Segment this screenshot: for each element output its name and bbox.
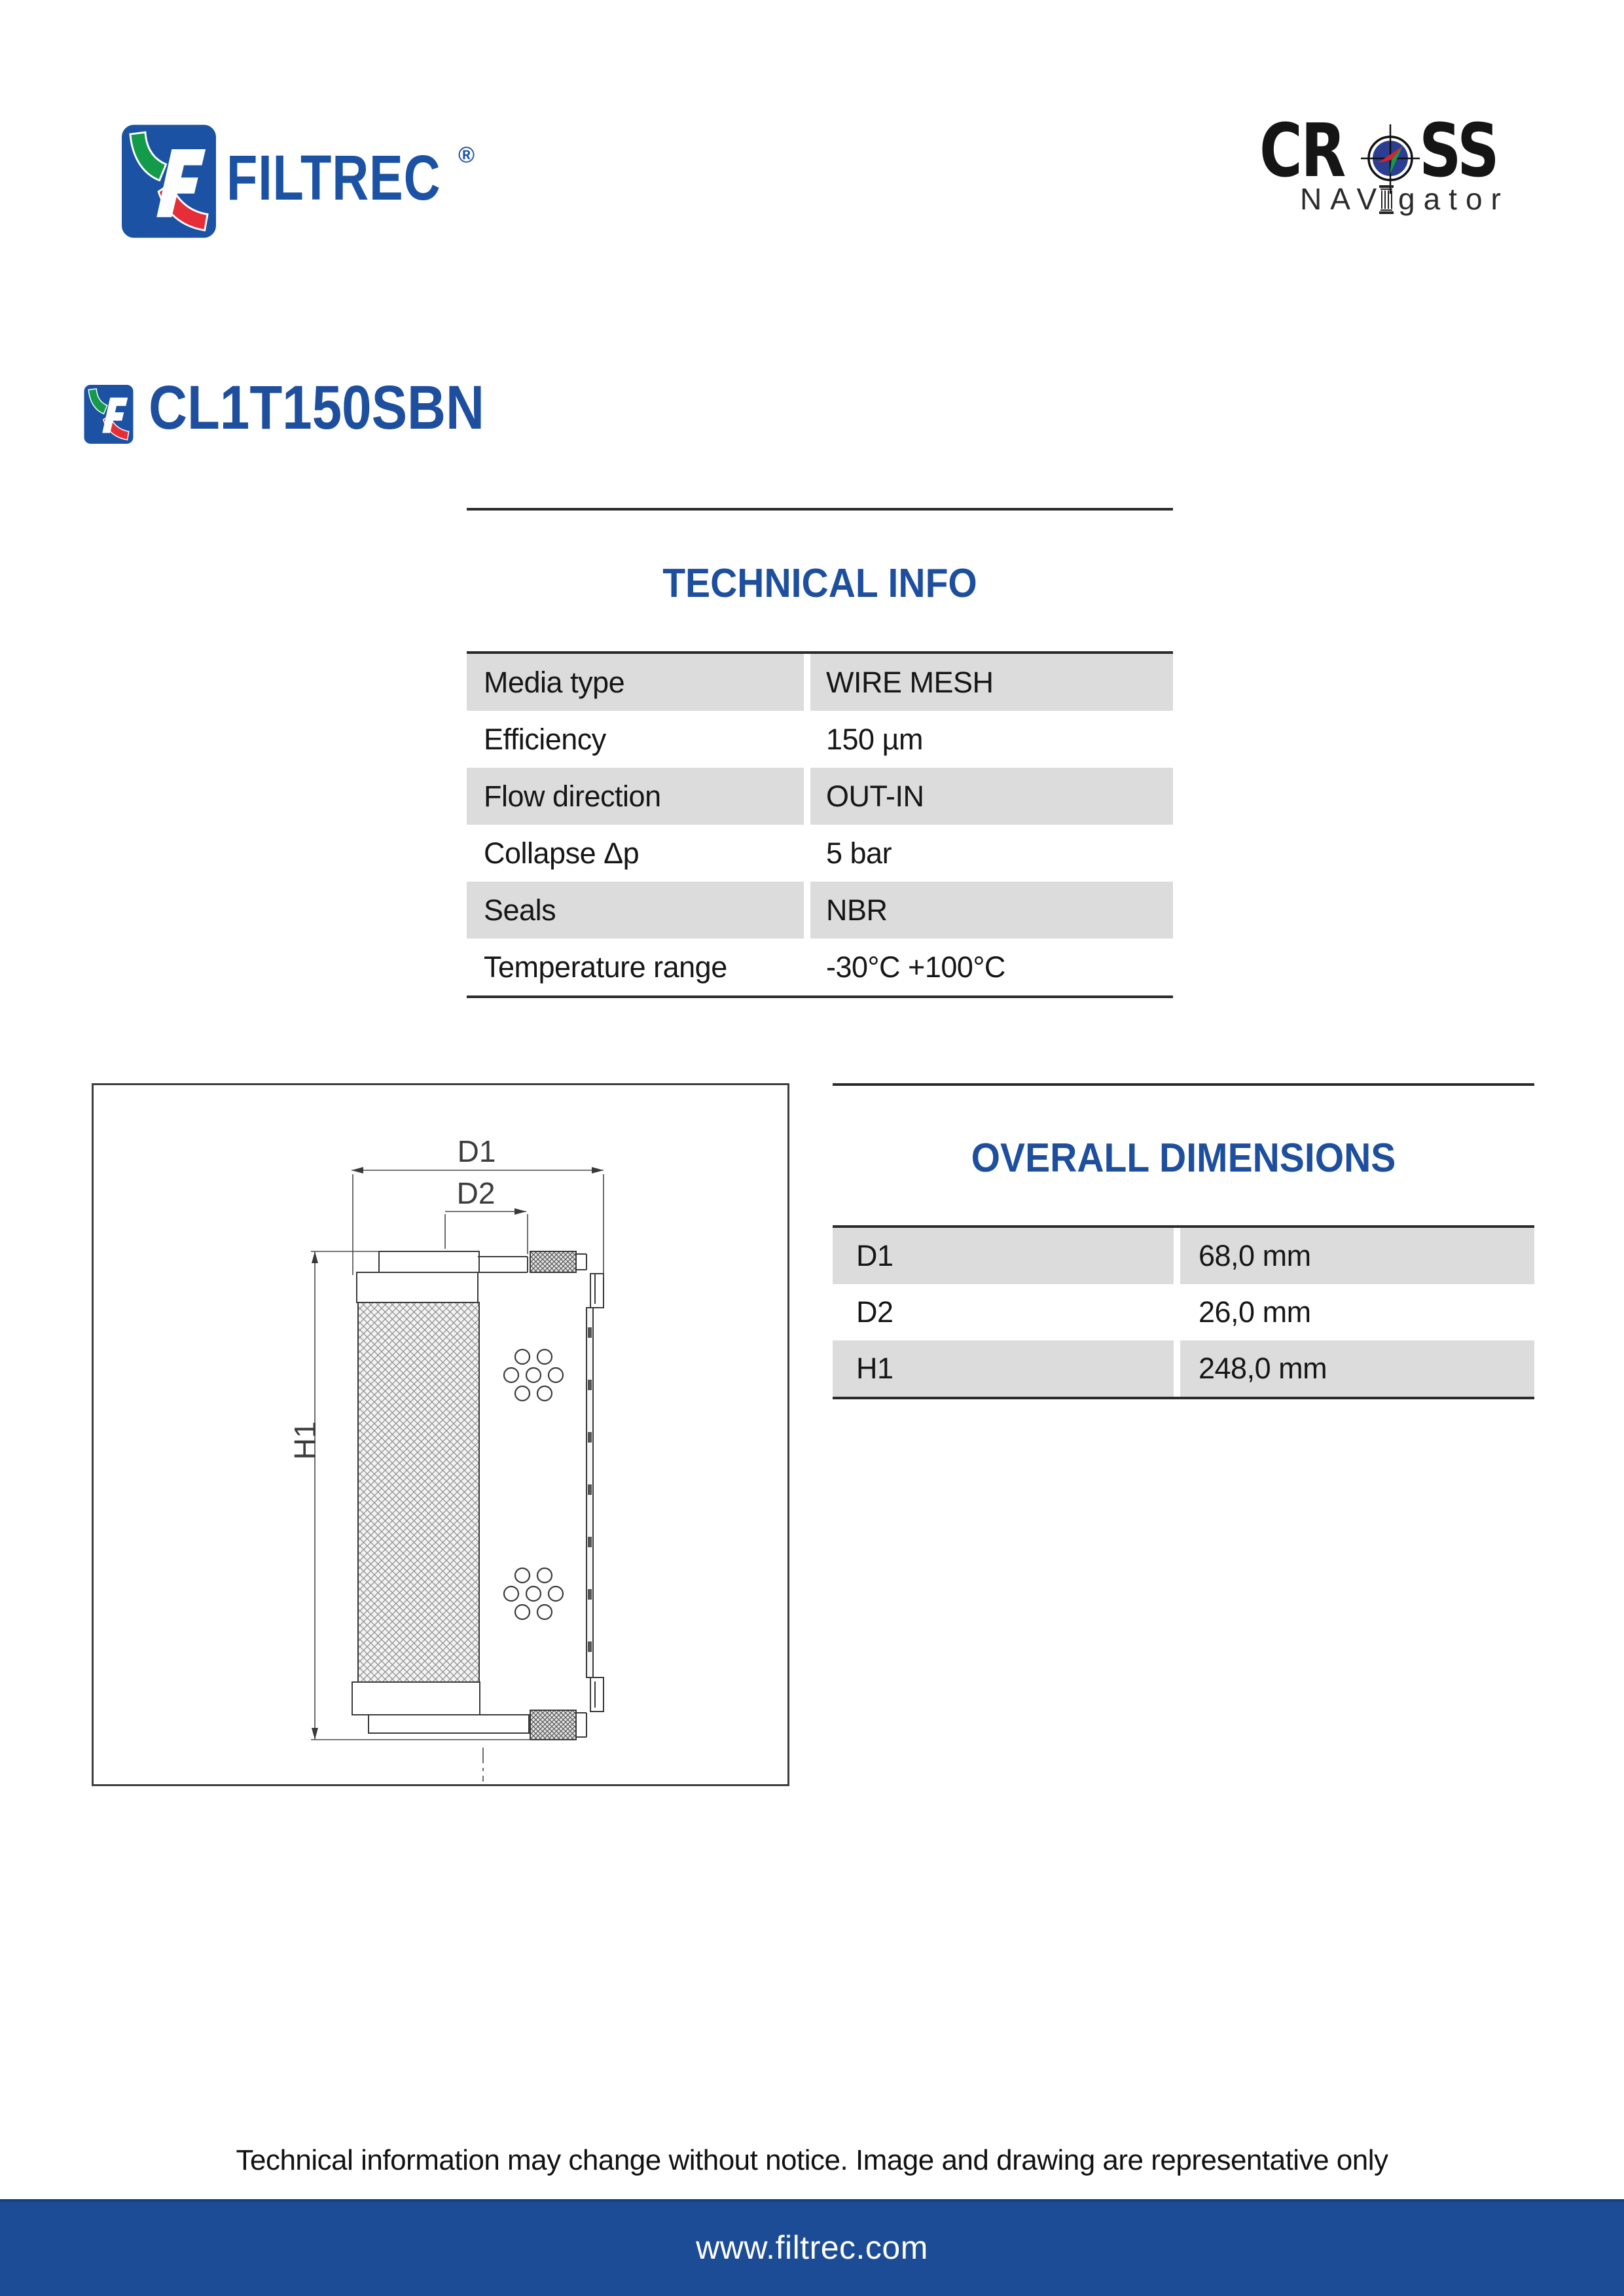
- row-label: Seals: [467, 882, 804, 939]
- filtrec-wordmark: FILTREC: [226, 146, 441, 209]
- part-number-title: CL1T150SBN: [149, 377, 484, 439]
- row-value: 26,0 mm: [1180, 1284, 1534, 1340]
- column-divider: [1174, 1228, 1180, 1284]
- row-value: 150 µm: [810, 711, 1173, 768]
- cross-logo-text-left: CR: [1259, 115, 1344, 188]
- row-label: Media type: [467, 654, 804, 711]
- footer-disclaimer: Technical information may change without…: [0, 2146, 1624, 2175]
- table-row: Collapse Δp 5 bar: [467, 825, 1173, 882]
- row-value: 68,0 mm: [1180, 1228, 1534, 1284]
- cross-logo-text-right: SS: [1419, 115, 1498, 188]
- table-row: H1 248,0 mm: [833, 1340, 1534, 1397]
- pillar-icon: [1379, 185, 1394, 214]
- column-divider: [804, 711, 810, 768]
- registered-trademark-symbol: ®: [458, 143, 475, 168]
- row-value: OUT-IN: [810, 768, 1173, 825]
- table-row: Seals NBR: [467, 882, 1173, 939]
- column-divider: [1174, 1340, 1180, 1397]
- perforation-holes: [504, 1350, 563, 1619]
- overall-dimensions-top-rule: [833, 1083, 1534, 1086]
- column-divider: [804, 825, 810, 882]
- filtrec-logo-icon: [122, 124, 216, 239]
- row-value: 248,0 mm: [1180, 1340, 1534, 1397]
- dimension-label-d1: D1: [458, 1134, 496, 1168]
- overall-dimensions-table: D1 68,0 mm D2 26,0 mm H1 248,0 mm: [833, 1225, 1534, 1399]
- row-label: Collapse Δp: [467, 825, 804, 882]
- website-bar: www.filtrec.com: [0, 2199, 1624, 2296]
- overall-dimensions-title: OVERALL DIMENSIONS: [861, 1138, 1506, 1179]
- table-row: D1 68,0 mm: [833, 1228, 1534, 1284]
- website-url: www.filtrec.com: [0, 2202, 1624, 2293]
- row-label: Flow direction: [467, 768, 804, 825]
- column-divider: [804, 654, 810, 711]
- part-badge-icon: [84, 385, 134, 444]
- table-row: Efficiency 150 µm: [467, 711, 1173, 768]
- technical-info-top-rule: [467, 508, 1173, 511]
- dimension-label-h1: H1: [288, 1422, 322, 1460]
- technical-info-title: TECHNICAL INFO: [495, 564, 1145, 604]
- row-label: D1: [833, 1228, 1174, 1284]
- table-row: D2 26,0 mm: [833, 1284, 1534, 1340]
- technical-info-table: Media type WIRE MESH Efficiency 150 µm F…: [467, 651, 1173, 998]
- table-row: Flow direction OUT-IN: [467, 768, 1173, 825]
- column-divider: [804, 939, 810, 996]
- table-row: Temperature range -30°C +100°C: [467, 939, 1173, 996]
- column-divider: [1174, 1284, 1180, 1340]
- column-divider: [804, 768, 810, 825]
- filter-element-outline: [352, 1251, 604, 1740]
- navigator-text-nav: NAV: [1300, 184, 1385, 214]
- row-value: -30°C +100°C: [810, 939, 1173, 996]
- row-value: WIRE MESH: [810, 654, 1173, 711]
- datasheet-page: FILTREC ® CR SS NAV gator CL1T150SBN TEC…: [0, 0, 1624, 2296]
- table-row: Media type WIRE MESH: [467, 654, 1173, 711]
- row-label: Efficiency: [467, 711, 804, 768]
- row-label: D2: [833, 1284, 1174, 1340]
- row-value: NBR: [810, 882, 1173, 939]
- row-label: Temperature range: [467, 939, 804, 996]
- dimension-label-d2: D2: [457, 1176, 496, 1210]
- technical-drawing: D1 D2 H1: [92, 1083, 789, 1786]
- row-label: H1: [833, 1340, 1174, 1397]
- row-value: 5 bar: [810, 825, 1173, 882]
- navigator-text-gator: gator: [1398, 184, 1509, 214]
- column-divider: [804, 882, 810, 939]
